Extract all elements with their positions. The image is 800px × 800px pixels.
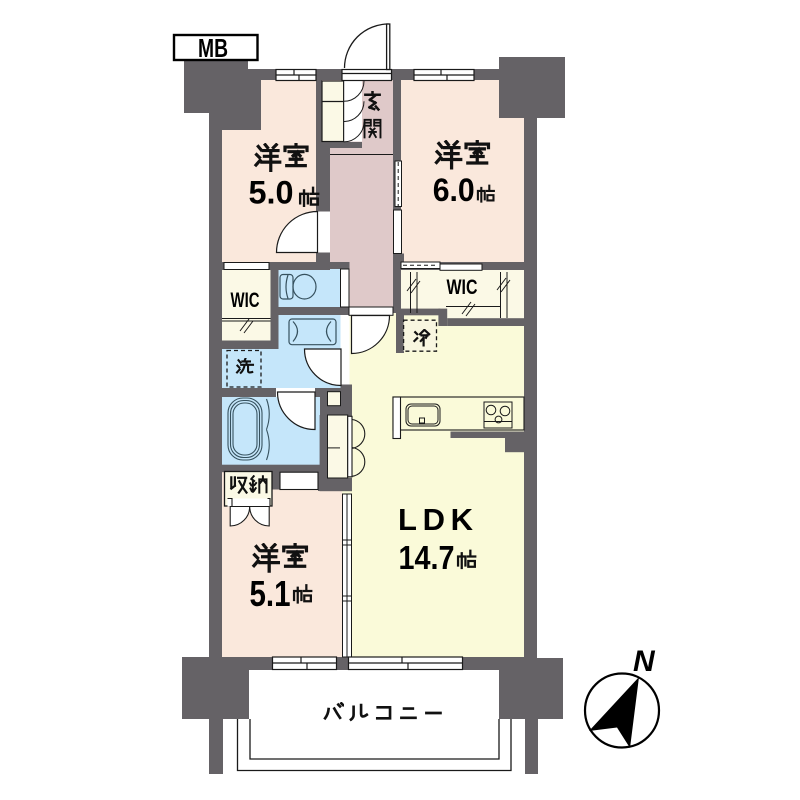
svg-text:N: N — [633, 645, 656, 678]
svg-text:LDK: LDK — [398, 502, 474, 537]
svg-text:14.7: 14.7 — [399, 539, 455, 576]
svg-text:5.1: 5.1 — [250, 573, 291, 614]
svg-text:5.0: 5.0 — [249, 175, 294, 211]
svg-text:WIC: WIC — [447, 276, 478, 299]
svg-text:6.0: 6.0 — [433, 172, 475, 208]
svg-text:WIC: WIC — [231, 289, 260, 312]
svg-text:MB: MB — [198, 33, 228, 63]
